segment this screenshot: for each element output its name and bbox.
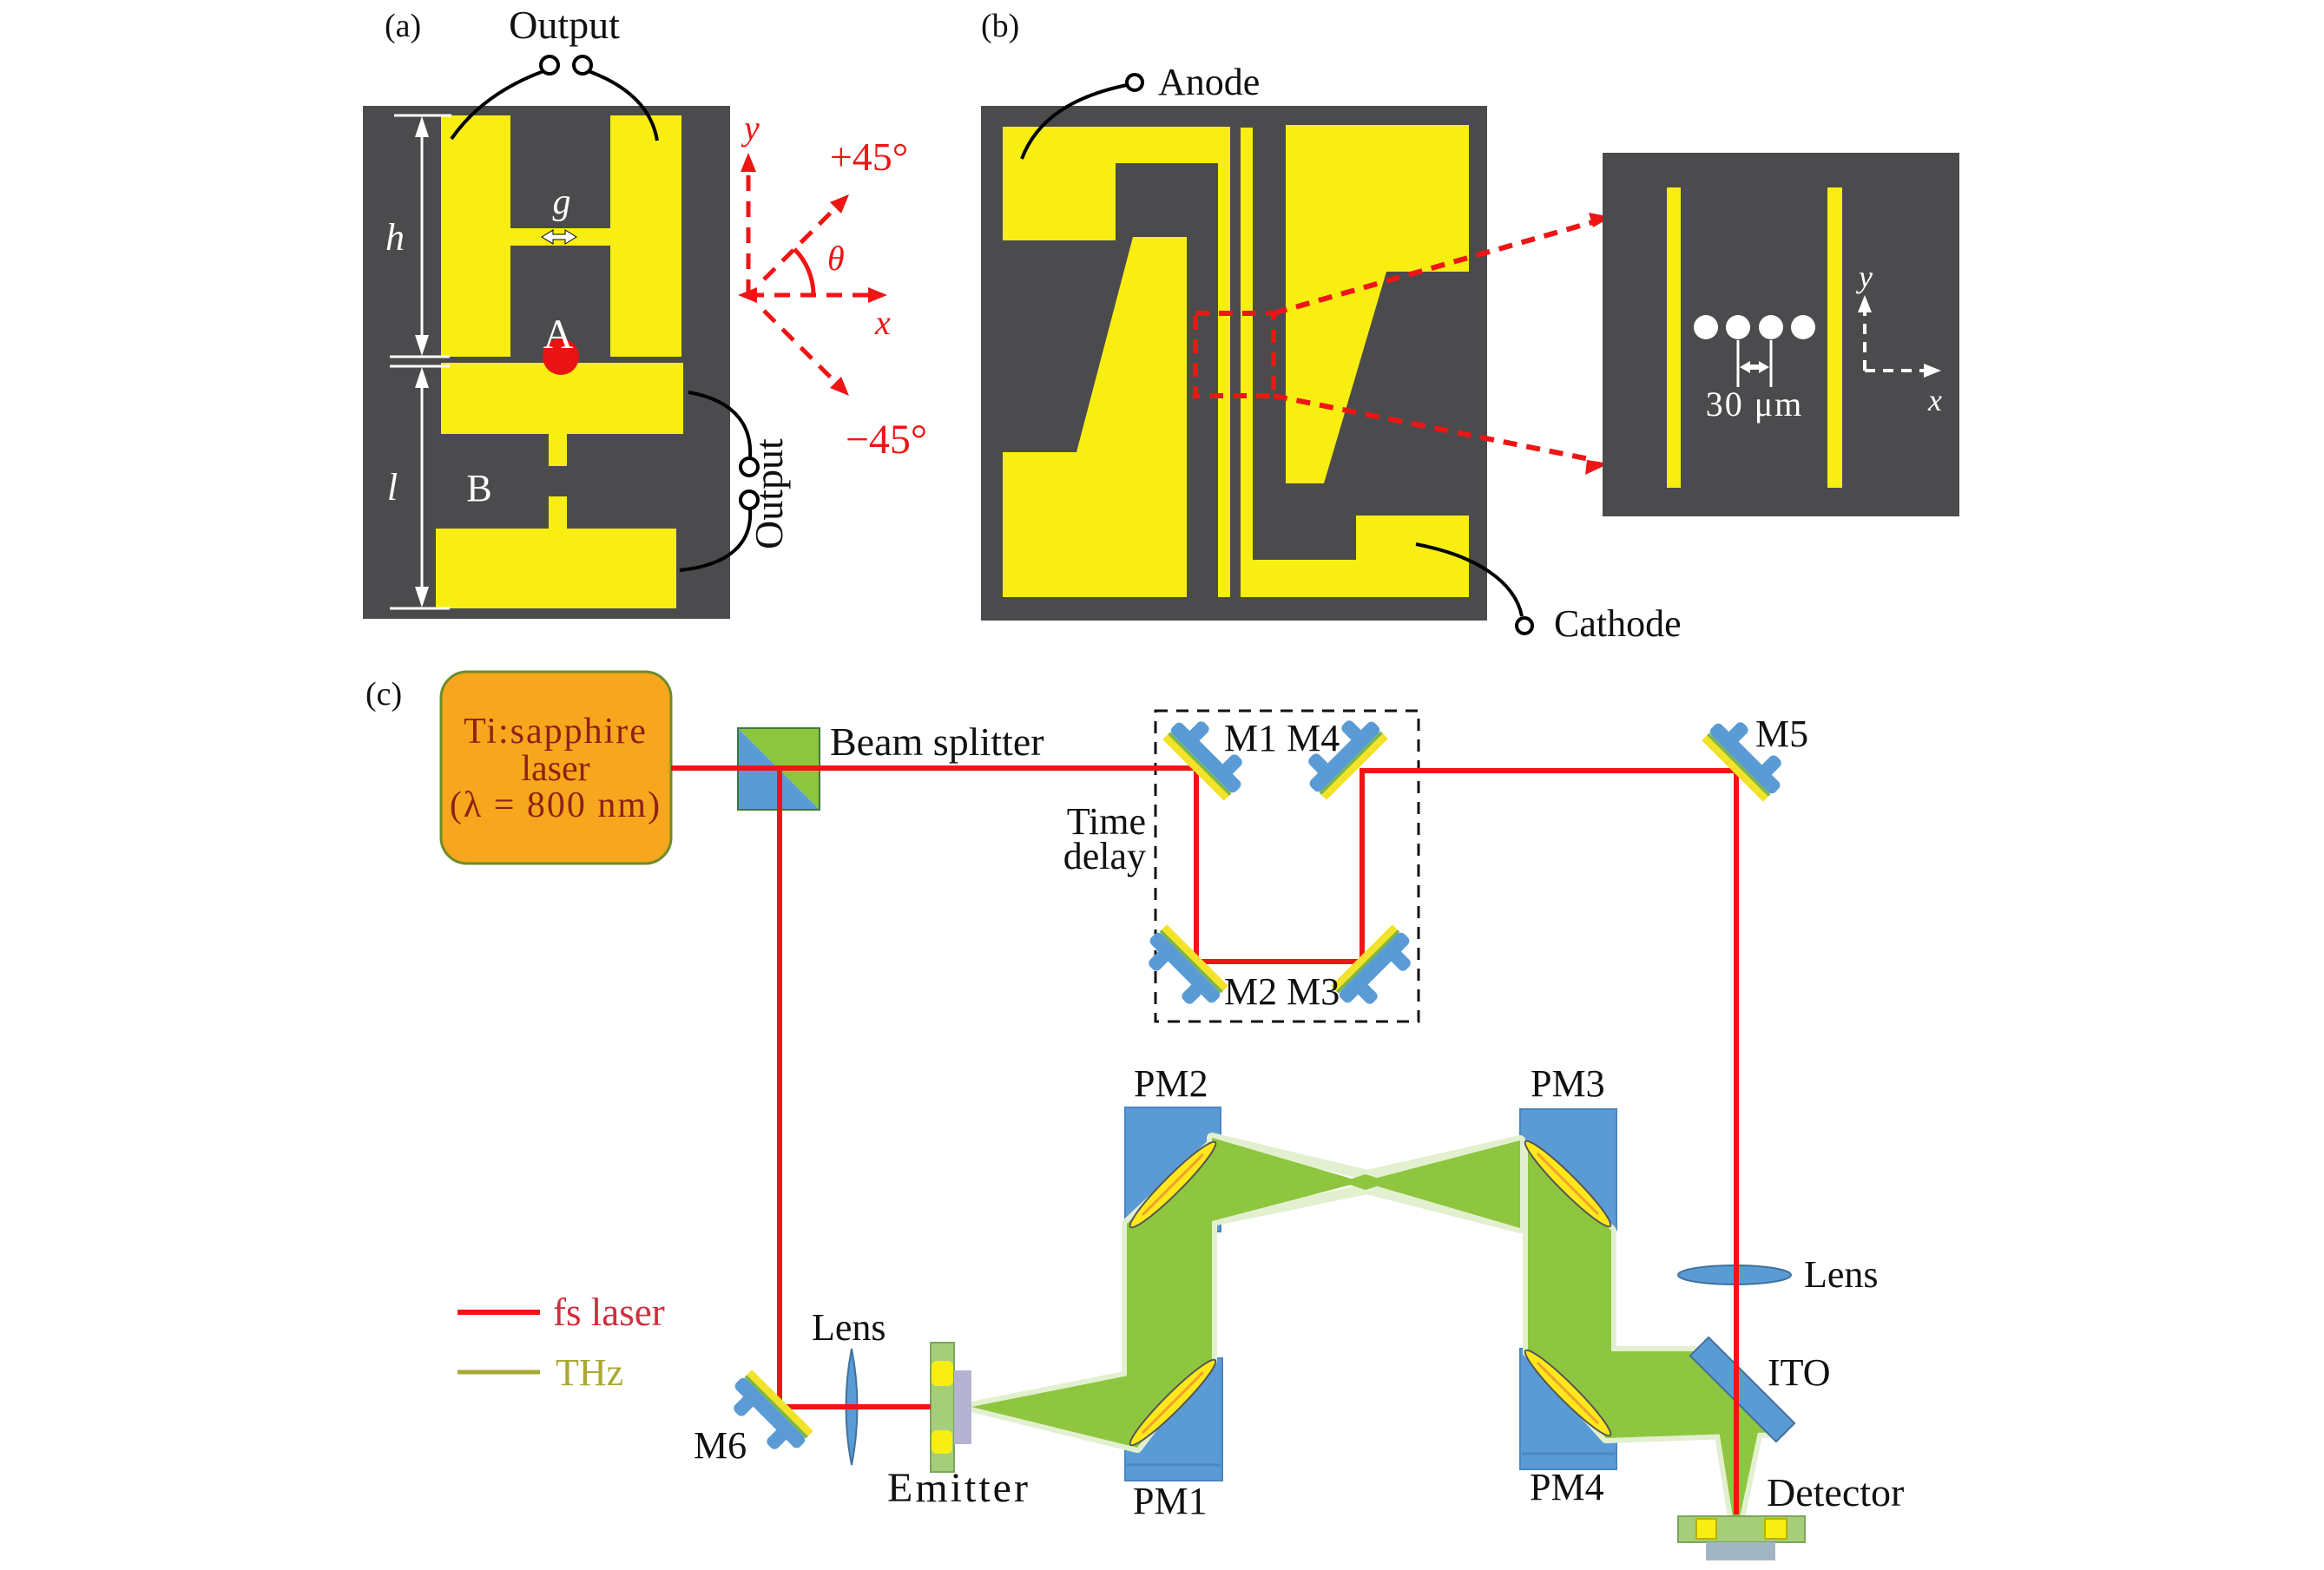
svg-text:(b): (b) [981,8,1019,44]
svg-text:M1 M4: M1 M4 [1224,717,1340,759]
svg-text:PM1: PM1 [1133,1480,1208,1522]
svg-text:laser: laser [521,749,589,789]
svg-text:θ: θ [827,239,845,278]
svg-text:x: x [1927,383,1942,417]
svg-text:(a): (a) [385,8,421,44]
svg-text:g: g [553,182,571,222]
svg-text:Lens: Lens [1804,1253,1879,1296]
svg-text:Ti:sapphire: Ti:sapphire [464,712,648,752]
svg-text:A: A [543,312,574,358]
svg-text:(c): (c) [365,676,402,713]
svg-text:+45°: +45° [830,135,908,179]
svg-text:THz: THz [556,1351,623,1394]
svg-text:B: B [466,467,491,509]
svg-text:Output: Output [747,438,791,549]
svg-text:PM4: PM4 [1530,1466,1604,1508]
svg-text:M2 M3: M2 M3 [1224,970,1340,1013]
svg-text:Output: Output [509,3,620,47]
svg-text:h: h [385,216,405,259]
svg-text:delay: delay [1063,835,1146,877]
svg-text:Detector: Detector [1767,1470,1904,1514]
svg-text:30 μm: 30 μm [1706,384,1804,424]
svg-text:l: l [387,466,398,509]
svg-text:ITO: ITO [1768,1351,1831,1394]
svg-text:−45°: −45° [846,417,927,463]
svg-text:(λ = 800 nm): (λ = 800 nm) [450,785,662,825]
svg-text:PM2: PM2 [1134,1062,1208,1105]
svg-text:PM3: PM3 [1531,1062,1605,1105]
svg-text:y: y [1856,259,1873,294]
svg-text:Emitter: Emitter [887,1465,1030,1511]
svg-text:y: y [741,108,760,148]
svg-text:Beam splitter: Beam splitter [830,719,1044,764]
svg-text:Anode: Anode [1158,61,1260,103]
svg-text:fs laser: fs laser [553,1291,665,1334]
svg-text:Lens: Lens [812,1306,886,1349]
svg-text:x: x [874,303,891,342]
svg-text:Cathode: Cathode [1554,602,1682,645]
svg-text:M6: M6 [694,1424,747,1467]
svg-text:M5: M5 [1755,713,1808,755]
